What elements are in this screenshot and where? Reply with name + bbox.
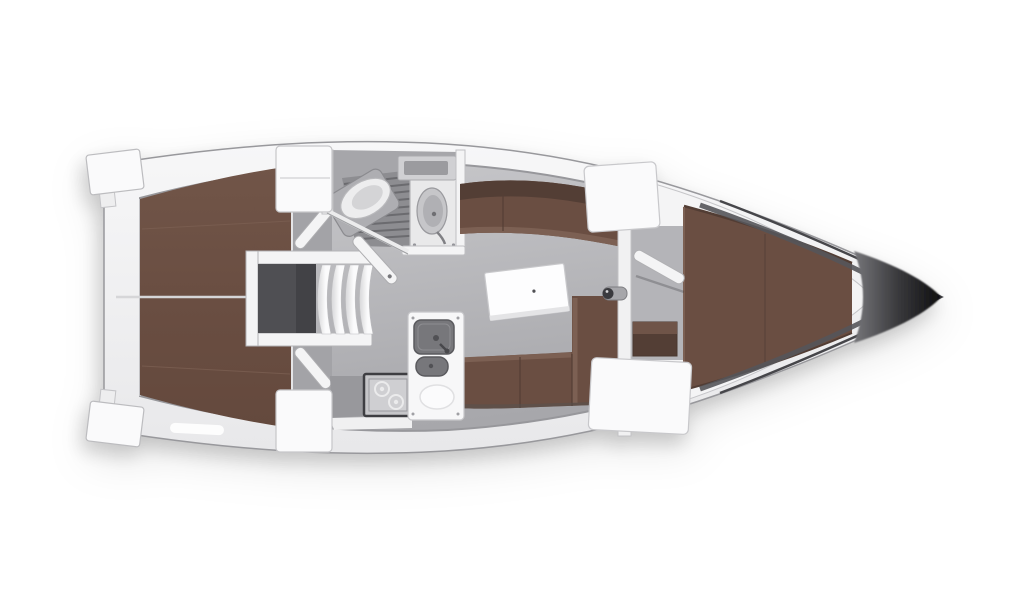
- galley-sink-small-drain: [429, 364, 433, 368]
- galley-cabinet-detail: [420, 385, 454, 409]
- companionway-wall-bottom: [246, 333, 372, 346]
- engine-compartment-shade: [296, 264, 316, 333]
- bow-cone: [854, 251, 941, 343]
- instrument-cylinder-dot: [606, 290, 609, 293]
- head-shelf-inner: [404, 161, 448, 175]
- forward-chest-top: [633, 322, 677, 334]
- stern-corner-block-bottom: [86, 401, 144, 447]
- galley-counter: [330, 376, 366, 418]
- salon-table-group: [484, 263, 569, 320]
- head-wall-bottom: [402, 246, 465, 255]
- deck-block-mid-bottom: [276, 390, 332, 452]
- yacht-floor-plan-canvas: [0, 0, 1024, 600]
- washbasin-bowl-inner: [423, 195, 443, 227]
- companionway-wall-top: [246, 251, 372, 264]
- galley-sink-drain: [433, 335, 439, 341]
- companionway-wall-left: [246, 251, 258, 346]
- deck-block-mid-top: [276, 146, 332, 212]
- galley-faucet-base: [445, 349, 450, 354]
- boat-hull-group: [86, 142, 941, 454]
- yacht-layout-plan: [0, 0, 1024, 600]
- forward-locker-bottom: [588, 357, 692, 434]
- forward-locker-top: [584, 162, 660, 233]
- stern-corner-block-top: [86, 149, 144, 195]
- washbasin-drain: [432, 212, 436, 216]
- galley-front-band: [330, 416, 412, 430]
- companionway: [246, 251, 373, 346]
- instrument-cylinder-cap: [603, 288, 614, 299]
